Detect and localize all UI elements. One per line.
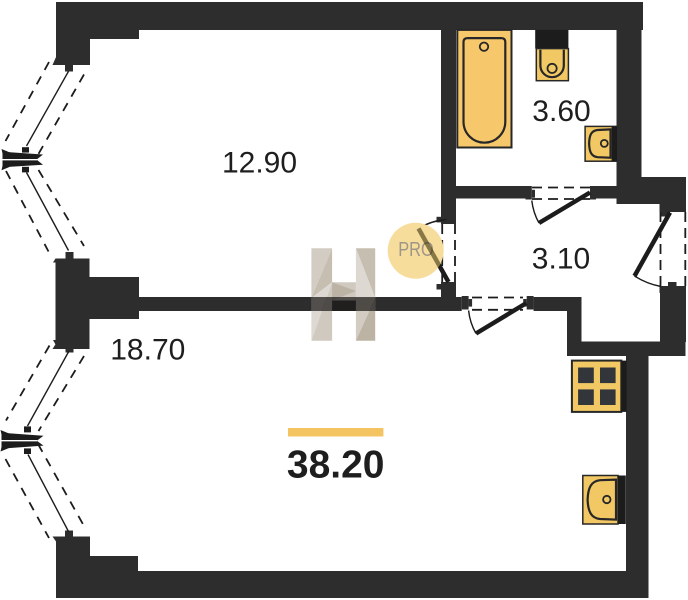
svg-text:12.90: 12.90 bbox=[222, 147, 297, 180]
svg-text:38.20: 38.20 bbox=[287, 444, 385, 487]
svg-text:3.10: 3.10 bbox=[532, 242, 590, 275]
svg-text:3.60: 3.60 bbox=[532, 95, 590, 128]
svg-text:18.70: 18.70 bbox=[110, 334, 185, 367]
